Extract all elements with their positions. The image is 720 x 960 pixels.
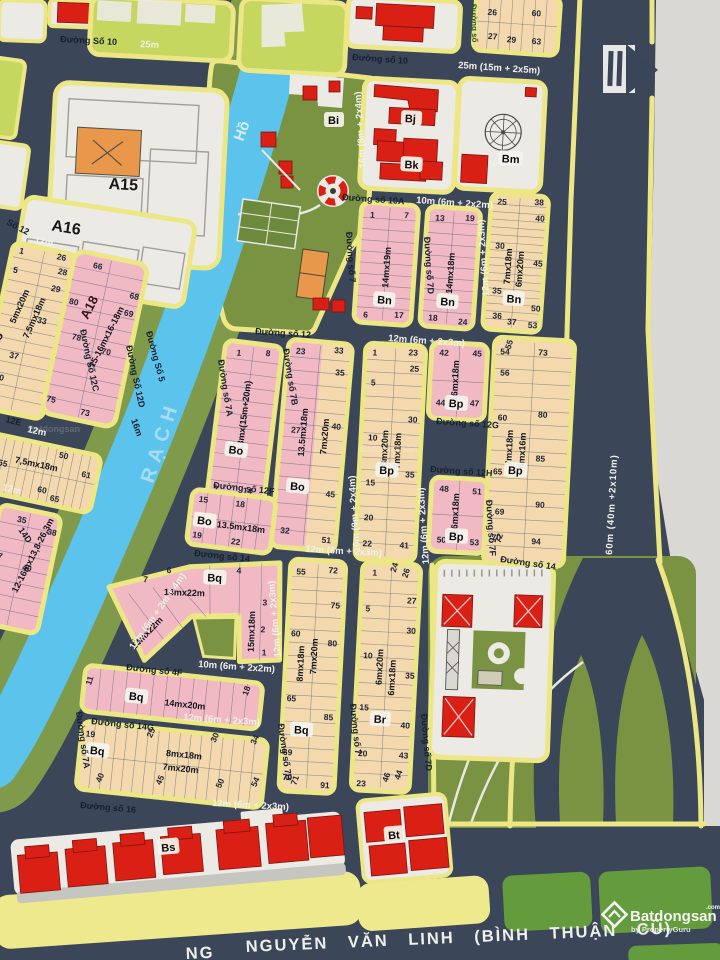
- building: [404, 804, 444, 837]
- building: [383, 26, 424, 42]
- plot-number: 35: [405, 469, 415, 479]
- block-label: Bs: [161, 842, 176, 855]
- plot-number: 35: [492, 285, 502, 296]
- plot-number: 85: [535, 453, 545, 463]
- block-bj-bk: Bj Bk: [359, 78, 459, 193]
- plot-number: 3: [262, 597, 267, 607]
- plot-size: 7mx18m: [503, 430, 515, 467]
- structure: [478, 671, 502, 686]
- block-label: Bq: [207, 572, 222, 585]
- plot-number: 85: [324, 712, 334, 722]
- plot-number: 24: [458, 316, 468, 327]
- block-topleft-white: [0, 0, 46, 42]
- plot-number: 7: [143, 574, 148, 584]
- building: [369, 843, 407, 876]
- plot-number: 47: [470, 398, 480, 408]
- block-label: Br: [373, 714, 387, 727]
- block-label: Bt: [388, 829, 401, 842]
- block-label: Bk: [404, 159, 420, 172]
- block-label: Bn: [506, 293, 522, 306]
- plot-number: 4: [236, 565, 241, 575]
- building: [525, 87, 536, 97]
- block-label: Bn: [377, 294, 393, 307]
- plot-number: 73: [538, 347, 548, 357]
- plot-number: 60: [531, 8, 541, 19]
- plot-number: 18: [428, 312, 438, 323]
- building: [329, 81, 340, 92]
- building: [261, 132, 276, 147]
- plot-number: 40: [400, 720, 410, 730]
- svg-text:Batdongsan: Batdongsan: [28, 424, 80, 434]
- plot-number: 1: [262, 647, 267, 657]
- block-label: A15: [108, 176, 138, 195]
- plot-number: 37: [507, 316, 517, 327]
- plot-number: 69: [495, 506, 505, 516]
- plot-number: 27: [407, 595, 417, 605]
- plot-number: 35: [405, 670, 415, 680]
- plot-number: 15: [359, 702, 369, 712]
- plot-number: 19: [465, 213, 475, 224]
- plot-number: 29: [506, 34, 516, 45]
- plot-number: 80: [538, 409, 548, 419]
- block-label: Bp: [449, 531, 465, 544]
- plot-number: 53: [469, 537, 479, 547]
- building: [409, 837, 449, 870]
- plot-number: 19: [192, 529, 203, 540]
- plot-number: 75: [330, 600, 340, 610]
- brand-tld: .com.vn: [706, 905, 720, 911]
- plot-number: 35: [335, 367, 346, 378]
- block-top-right: 2660272963: [473, 0, 561, 56]
- block-white-red-top: [346, 0, 460, 52]
- street-width: 25m: [140, 39, 160, 51]
- plot-number: 13: [435, 213, 445, 224]
- plot-number: 25: [409, 363, 419, 373]
- master-plan-map: 2660272963 A15 A16: [0, 0, 720, 960]
- plot-number: 10: [363, 650, 373, 660]
- plot-number: 44: [436, 397, 446, 407]
- building: [461, 154, 488, 183]
- plot-number: 40: [535, 213, 545, 224]
- block-green-1: [89, 0, 234, 61]
- block-label: Bp: [379, 465, 395, 478]
- plot-number: 5: [371, 377, 377, 387]
- block-label: Bp: [448, 398, 464, 411]
- block-bp-2: 42454447 16mx18m Bp: [428, 342, 488, 421]
- map-canvas: 2660272963 A15 A16: [0, 0, 720, 960]
- plot-size: 6mx18m: [386, 659, 398, 696]
- plot-number: 30: [406, 625, 416, 635]
- plot-number: 15: [365, 477, 375, 487]
- plot-number: 42: [439, 347, 449, 357]
- plot-number: 94: [531, 536, 541, 546]
- building: [356, 6, 373, 19]
- plot-number: 51: [472, 486, 482, 496]
- street-name: Đường số: [469, 4, 479, 43]
- block-bn-3: 25384030453550363753 7mx18m 6mx20m Bn: [483, 193, 549, 333]
- block-label: Bp: [508, 465, 524, 478]
- block-br: 1242627530103515402043442346 6mx20m 6mx1…: [351, 560, 421, 793]
- plot-number: 23: [296, 346, 307, 357]
- plot-number: 1: [372, 347, 378, 357]
- plot-number: 33: [334, 345, 345, 356]
- block-label: Bm: [501, 153, 520, 166]
- plot-number: 65: [493, 466, 503, 476]
- block-bt: Bt: [357, 793, 452, 882]
- plot-number: 55: [296, 566, 306, 576]
- plot-number: 72: [328, 565, 338, 575]
- building: [332, 300, 345, 312]
- plot-number: 26: [487, 7, 497, 18]
- block-green-2: [238, 0, 348, 75]
- block-label: Bo: [228, 444, 244, 458]
- plot-number: 48: [439, 483, 449, 493]
- plot-number: 56: [500, 367, 510, 377]
- block-label: Bj: [405, 113, 417, 126]
- block-label: Bn: [440, 296, 456, 309]
- plot-number: 45: [533, 258, 543, 269]
- plot-number: 30: [408, 414, 418, 424]
- plot-number: 65: [286, 693, 296, 703]
- plot-number: 60: [291, 628, 301, 638]
- brand-byline: by PropertyGuru: [631, 925, 691, 934]
- block-bp-3: 48515053 16mx18m Bp: [428, 477, 488, 554]
- svg-text:Batdongsan: Batdongsan: [360, 444, 418, 455]
- building: [313, 298, 329, 310]
- plot-number: 43: [399, 750, 409, 760]
- plot-size: 7mx20m: [308, 638, 320, 675]
- tennis-courts: [237, 199, 300, 249]
- plot-size: 8mx18m: [295, 645, 307, 682]
- plot-size: 15mx18m: [246, 611, 257, 652]
- plot-number: 17: [394, 310, 404, 321]
- building: [375, 3, 434, 28]
- block-label: Bq: [128, 691, 144, 704]
- plot-number: 80: [327, 638, 337, 648]
- block-label: Bq: [294, 724, 309, 737]
- plot-number: 23: [408, 347, 418, 357]
- plot-number: 27: [488, 31, 498, 42]
- plot-number: 45: [472, 348, 482, 358]
- plot-number: 5: [365, 603, 371, 613]
- plot-number: 22: [230, 536, 241, 547]
- block-label: Bo: [196, 515, 212, 529]
- plot-number: 53: [528, 320, 538, 331]
- block-bn-1: 17617 14mx19m Bn: [354, 202, 419, 326]
- plot-number: 10: [368, 432, 378, 442]
- plot-number: 41: [399, 540, 409, 550]
- block-bm: Bm: [454, 78, 546, 192]
- brand-name: Batdongsan: [630, 908, 717, 925]
- block-label: Bq: [89, 745, 105, 758]
- building: [279, 161, 292, 174]
- block-bo-3: 15181922 13.5mx18m Bo: [186, 489, 276, 554]
- plot-number: 90: [535, 499, 545, 509]
- plot-number: 91: [320, 780, 330, 790]
- block-label-chip: Bi: [324, 112, 344, 127]
- plot-number: 15: [198, 494, 209, 505]
- plot-number: 36: [492, 310, 502, 321]
- plot-number: 6: [166, 565, 171, 575]
- building: [420, 161, 443, 180]
- plot-number: 50: [531, 303, 541, 314]
- plot-number: 63: [531, 36, 541, 47]
- block-facility: [429, 561, 554, 761]
- plot-number: 25: [497, 196, 507, 207]
- plot-number: 23: [356, 778, 366, 788]
- plot-size: 6mx20m: [374, 649, 386, 686]
- plot-number: 32: [280, 525, 291, 536]
- plot-number: 2: [260, 624, 265, 634]
- plot-number: 51: [321, 535, 332, 546]
- avenue-name-fragment: NG: [185, 944, 215, 960]
- plot-number: 40: [331, 421, 342, 432]
- plot-number: 1: [372, 568, 378, 578]
- plot-number: 38: [534, 197, 544, 208]
- walkway: [446, 629, 460, 689]
- plot-number: 18: [235, 498, 246, 509]
- block-label: Bo: [290, 481, 306, 494]
- plot-number: 20: [364, 512, 374, 522]
- building: [303, 86, 317, 100]
- block-label: Bi: [328, 115, 339, 127]
- plot-number: 45: [325, 489, 336, 500]
